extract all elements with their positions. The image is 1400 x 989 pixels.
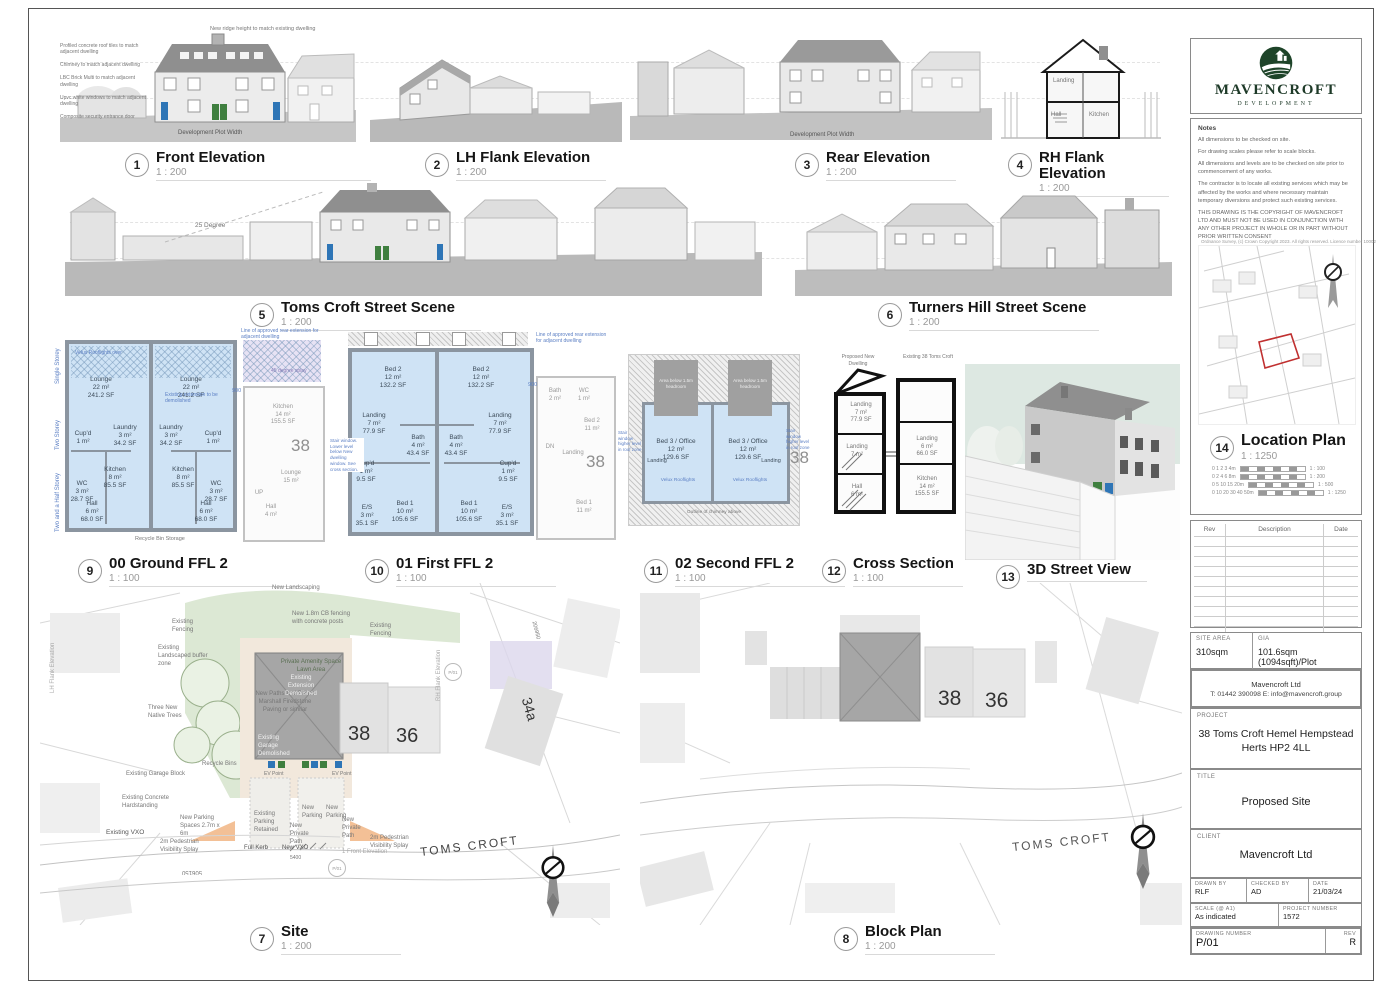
project-box: PROJECT 38 Toms Croft Hemel Hempstead He… [1190, 708, 1362, 769]
rev-cell [1324, 587, 1358, 597]
site-label: Existing VXO [106, 829, 144, 837]
site-area-label: SITE AREA [1196, 636, 1247, 642]
site-label: New VXO [282, 845, 308, 853]
turners-hill-scene-view [795, 188, 1172, 298]
scale-bar-row: 0 10 20 30 40 50m1 : 1250 [1212, 490, 1354, 496]
neighbor-room: DN [540, 444, 560, 452]
view-number-badge: 11 [644, 559, 668, 583]
internal-wall [171, 450, 231, 452]
checked-by-value: AD [1251, 887, 1304, 896]
gia-label: GIA [1258, 636, 1356, 642]
rev-cell [1324, 547, 1358, 557]
site-label: Private Amenity Space Lawn Area [278, 659, 344, 675]
view-scale: 1 : 200 [909, 317, 1099, 328]
rh-room-label: Landing [1053, 78, 1074, 86]
scale-ticks: 0 1 2 3 4m [1212, 466, 1236, 472]
view-title: Location Plan [1241, 433, 1346, 450]
site-label: EV Point [264, 771, 283, 778]
view-scale: 1 : 200 [281, 941, 401, 952]
front-elevation-view: Profiled concrete roof tiles to match ad… [60, 30, 356, 150]
room-label: Landing 7 m² 77.9 SF [356, 412, 392, 436]
chimney-note: Outline of chimney above [684, 510, 744, 516]
section-room: Landing 6 m² 66.0 SF [910, 436, 944, 459]
room-label: Landing [758, 458, 784, 465]
view-title: Turners Hill Street Scene [909, 300, 1099, 316]
lh-flank-view [370, 36, 622, 148]
view-scale: 1 : 200 [826, 167, 956, 178]
neighbor-room: WC 1 m² [572, 388, 596, 403]
site-label: New Private Path [290, 823, 316, 846]
gap-dim: 900 [232, 388, 241, 395]
view-number-badge: 3 [795, 153, 819, 177]
view-title: 02 Second FFL 2 [675, 556, 845, 572]
view-number-badge: 1 [125, 153, 149, 177]
house-number: 38 [291, 436, 310, 456]
storey-label: Two and a Half Storey [55, 473, 63, 532]
toms-croft-scene-drawing [65, 182, 762, 296]
velux-note: Velux Rooflights over [75, 350, 135, 356]
block-plan-drawing [640, 583, 1182, 925]
site-label: New 1.8m CB fencing with concrete posts [292, 611, 354, 627]
note-item: THIS DRAWING IS THE COPYRIGHT OF MAVENCR… [1198, 209, 1354, 241]
extension-note: Line of approved rear extension for adja… [536, 332, 612, 345]
scale-bar-graphic [1248, 482, 1314, 488]
view-number-badge: 9 [78, 559, 102, 583]
gia-value: 101.6sqm (1094sqft)/Plot [1258, 647, 1356, 667]
view-label-scene-toms: 5 Toms Croft Street Scene 1 : 200 [250, 300, 481, 331]
site-dim: 506150 [182, 867, 202, 875]
project-number-value: 1572 [1283, 912, 1357, 921]
section-col-right: Existing 38 Toms Croft [900, 354, 956, 361]
dormer [416, 332, 430, 346]
ridge-note: New ridge height to match existing dwell… [210, 26, 340, 33]
scale-bar-row: 0 1 2 3 4m1 : 100 [1212, 466, 1354, 472]
rev-cell [1226, 567, 1324, 577]
view-label-lh: 2 LH Flank Elevation 1 : 200 [425, 150, 606, 181]
room-label: Bath 4 m² 43.4 SF [440, 434, 472, 458]
neighbor-room: Bed 2 11 m² [576, 418, 608, 433]
revision-table: Rev Description Date [1190, 520, 1362, 628]
site-label: New Parking [326, 805, 350, 821]
scale-bar-graphic [1258, 490, 1324, 496]
room-label: Bed 2 12 m² 132.2 SF [374, 366, 412, 390]
note-line: LBC Brick Multi to match adjacent dwelli… [60, 75, 135, 88]
neighbor-room: UP [249, 490, 269, 498]
rev-cell [1194, 587, 1226, 597]
title-value: Proposed Site [1197, 796, 1355, 808]
client-label: CLIENT [1197, 834, 1355, 840]
storey-label: Single Storey [55, 348, 63, 384]
title-box: TITLE Proposed Site [1190, 769, 1362, 829]
room-label: Lounge 22 m² 241.2 SF [81, 376, 121, 400]
site-dim: 5400 [290, 855, 301, 862]
room-label: E/S 3 m² 35.1 SF [354, 504, 380, 528]
site-label: Existing Parking Retained [254, 811, 288, 834]
view-number-badge: 5 [250, 303, 274, 327]
brand-tagline: DEVELOPMENT [1237, 101, 1314, 107]
view-scale: 1 : 200 [281, 317, 481, 328]
view-scale: 1 : 200 [456, 167, 606, 178]
scale-row: SCALE (@ A1) As indicated PROJECT NUMBER… [1190, 903, 1362, 927]
site-label: Three New Native Trees [148, 705, 188, 721]
room-label: E/S 3 m² 35.1 SF [494, 504, 520, 528]
rev-col-header: Rev [1194, 524, 1226, 537]
site-plan-view: New Landscaping Existing Fencing Existin… [40, 583, 620, 925]
house-number: 38 [586, 452, 605, 472]
party-wall [711, 402, 714, 504]
site-label: New Landscaping [272, 585, 320, 593]
first-plan-view: Bed 2 12 m² 132.2 SF Bed 2 12 m² 132.2 S… [330, 332, 612, 552]
room-label: Landing 7 m² 77.9 SF [482, 412, 518, 436]
headroom-label: Area below 1.5m headroom [730, 378, 770, 390]
site-label: LH Flank Elevation [50, 643, 58, 693]
view-title: Front Elevation [156, 150, 371, 166]
view-title: Block Plan [865, 924, 995, 940]
note-line: Upvc white windows to match adjacent dwe… [60, 95, 146, 108]
room-label: Bed 2 12 m² 132.2 SF [462, 366, 500, 390]
notes-location-box: Notes All dimensions to be checked on si… [1190, 118, 1362, 515]
neighbor-room: Bath 2 m² [542, 388, 568, 403]
rev-cell [1226, 617, 1324, 627]
splay-hatch [243, 340, 321, 382]
neighbor-room: Kitchen 14 m² 155.5 SF [261, 404, 305, 427]
scale-bar-row: 0 5 10 15 20m1 : 500 [1212, 482, 1354, 488]
splay-note: 45 degree splay [271, 368, 307, 375]
scale-ticks: 0 10 20 30 40 50m [1212, 490, 1254, 496]
rh-room-label: Hall [1051, 112, 1061, 120]
internal-wall [438, 424, 474, 426]
scale-ratio: 1 : 200 [1310, 474, 1325, 480]
view-label-rear: 3 Rear Elevation 1 : 200 [795, 150, 956, 181]
view-scale: 1 : 200 [865, 941, 995, 952]
room-label: Bed 1 10 m² 105.6 SF [450, 500, 488, 524]
ref-marker: P/01 [328, 859, 346, 877]
front-elevation-notes: Profiled concrete roof tiles to match ad… [60, 36, 148, 121]
rev-value: R [1330, 937, 1356, 947]
rev-col-header: Description [1226, 524, 1324, 537]
site-label: 2m Pedestrian Visibility Splay [160, 839, 204, 855]
site-label: Full Kerb [244, 845, 268, 853]
logo-box: MAVENCROFT DEVELOPMENT [1190, 38, 1362, 114]
site-label: Existing Garage Demolished [258, 735, 296, 758]
scale-ticks: 0 5 10 15 20m [1212, 482, 1244, 488]
rev-cell [1226, 597, 1324, 607]
scale-ratio: 1 : 500 [1318, 482, 1333, 488]
rev-cell [1324, 617, 1358, 627]
location-map: Ordnance Survey, (c) Crown Copyright 202… [1198, 245, 1356, 425]
title-label: TITLE [1197, 774, 1355, 780]
site-area-value: 310sqm [1196, 647, 1247, 657]
view-scale: 1 : 1250 [1241, 451, 1346, 462]
view-title: 01 First FFL 2 [396, 556, 556, 572]
note-item: The contractor is to locate all existing… [1198, 180, 1354, 204]
plot-width-label: Development Plot Width [790, 132, 854, 140]
view-label-site: 7 Site 1 : 200 [250, 924, 401, 955]
storey-label: Two Storey [55, 420, 63, 450]
rev-cell [1226, 557, 1324, 567]
internal-wall [400, 424, 436, 426]
view-number-badge: 10 [365, 559, 389, 583]
scale-bars: 0 1 2 3 4m1 : 100 0 2 4 6 8m1 : 200 0 5 … [1198, 466, 1354, 496]
location-map-drawing [1199, 246, 1355, 424]
rev-cell [1226, 607, 1324, 617]
rev-cell [1194, 557, 1226, 567]
velux-note: Velux Rooflights [658, 478, 698, 484]
view-title: 00 Ground FFL 2 [109, 556, 299, 572]
party-wall [435, 348, 439, 536]
house-number-38: 38 [938, 687, 961, 711]
note-line: Profiled concrete roof tiles to match ad… [60, 43, 138, 56]
view-number-badge: 8 [834, 927, 858, 951]
contact-details: T: 01442 390098 E: info@mavencroft.group [1210, 691, 1342, 698]
rev-cell [1324, 597, 1358, 607]
view-title: Rear Elevation [826, 150, 956, 166]
view-title: 3D Street View [1027, 562, 1147, 578]
rev-cell [1324, 577, 1358, 587]
os-copyright: Ordnance Survey, (c) Crown Copyright 202… [1201, 239, 1376, 244]
rev-cell [1226, 547, 1324, 557]
drawing-sheet: Profiled concrete roof tiles to match ad… [0, 0, 1400, 989]
section-col-left: Proposed New Dwelling [832, 354, 884, 367]
degree-25-label: 25 Degree [195, 222, 225, 230]
room-label: Cup'd 1 m² 9.5 SF [494, 460, 522, 484]
lh-flank-drawing [370, 36, 622, 142]
rev-cell [1194, 607, 1226, 617]
rh-room-label: Kitchen [1089, 112, 1109, 120]
section-room: Kitchen 14 m² 155.5 SF [910, 476, 944, 499]
view-title: RH Flank Elevation [1039, 150, 1169, 182]
rev-cell [1324, 557, 1358, 567]
note-item: All dimensions and levels are to be chec… [1198, 160, 1354, 176]
room-label: Kitchen 8 m² 85.5 SF [95, 466, 135, 490]
scale-ratio: 1 : 1250 [1328, 490, 1346, 496]
rear-elevation-drawing [630, 32, 992, 140]
area-box: SITE AREA 310sqm GIA 101.6sqm (1094sqft)… [1190, 632, 1362, 669]
site-label: New Parking Spaces 2.7m x 6m [180, 815, 222, 838]
view-number-badge: 14 [1210, 436, 1234, 460]
block-plan-view: 38 36 TOMS CROFT [640, 583, 1182, 925]
room-label: Bed 1 10 m² 105.6 SF [386, 500, 424, 524]
internal-wall [71, 450, 131, 452]
north-arrow-icon [538, 845, 568, 917]
house-number-36: 36 [396, 725, 418, 748]
rear-elevation-view: Development Plot Width [630, 32, 992, 148]
site-label: Existing Fencing [172, 619, 216, 635]
street-view-3d-drawing [965, 364, 1180, 560]
drawn-by-value: RLF [1195, 887, 1242, 896]
rooflight-hatch [155, 346, 231, 378]
sheet-scale-value: As indicated [1195, 912, 1274, 921]
site-label: Existing Concrete Hardstanding [122, 795, 178, 811]
rev-cell [1324, 567, 1358, 577]
scale-bar-graphic [1240, 466, 1306, 472]
headroom-label: Area below 1.5m headroom [656, 378, 696, 390]
section-room: Landing 7 m² [842, 444, 872, 459]
room-label: Cup'd 1 m² [199, 430, 227, 446]
room-label: Laundry 3 m² 34.2 SF [153, 424, 189, 448]
plot-width-label: Development Plot Width [178, 130, 242, 138]
room-label: Hall 6 m² 68.0 SF [191, 500, 221, 524]
view-label-block: 8 Block Plan 1 : 200 [834, 924, 995, 955]
room-label: Hall 6 m² 68.0 SF [77, 500, 107, 524]
mavencroft-logo-icon [1259, 46, 1293, 80]
notes-heading: Notes [1198, 125, 1354, 132]
drawn-row: DRAWN BY RLF CHECKED BY AD DATE 21/03/24 [1190, 878, 1362, 903]
room-label: Laundry 3 m² 34.2 SF [107, 424, 143, 448]
date-value: 21/03/24 [1313, 887, 1357, 896]
section-room: Hall 6 m² [842, 484, 872, 499]
neighbor-room: Bed 1 11 m² [568, 500, 600, 515]
view-number-badge: 12 [822, 559, 846, 583]
view-label-location: 14 Location Plan 1 : 1250 [1210, 433, 1354, 462]
dormer [452, 332, 466, 346]
site-label: Recycle Bins [202, 761, 242, 769]
rev-cell [1194, 547, 1226, 557]
house-number-38: 38 [348, 723, 370, 746]
view-number-badge: 2 [425, 153, 449, 177]
neighbor-room: Lounge 15 m² [273, 470, 309, 485]
cross-section-view: Proposed New Dwelling Existing 38 Toms C… [828, 356, 962, 528]
rev-cell [1324, 537, 1358, 547]
velux-note: Velux Rooflights [730, 478, 770, 484]
rev-cell [1194, 577, 1226, 587]
site-label: Existing Garage Block [126, 771, 186, 779]
second-plan-view: Area below 1.5m headroom Area below 1.5m… [618, 350, 810, 546]
view-scale: 1 : 200 [156, 167, 371, 178]
contact-box: Mavencroft Ltd T: 01442 390098 E: info@m… [1190, 669, 1362, 708]
site-label: New Parking [302, 805, 326, 821]
house-number-36: 36 [985, 689, 1008, 713]
view-title: Site [281, 924, 401, 940]
client-value: Mavencroft Ltd [1197, 849, 1355, 861]
gap-dim: 900 [528, 382, 537, 389]
note-item: All dimensions to be checked on site. [1198, 136, 1354, 144]
view-number-badge: 6 [878, 303, 902, 327]
rh-flank-drawing [995, 34, 1167, 142]
scale-bar-graphic [1240, 474, 1306, 480]
rev-cell [1324, 607, 1358, 617]
neighbor-room: Landing [558, 450, 588, 458]
demolish-note: Existing extension to be demolished [165, 392, 221, 405]
house-number: 38 [790, 448, 809, 468]
room-label: Cup'd 1 m² [69, 430, 97, 446]
room-label: Bath 4 m² 43.4 SF [402, 434, 434, 458]
rev-cell [1226, 587, 1324, 597]
dormer [364, 332, 378, 346]
site-label: Existing Fencing [370, 623, 414, 639]
stair-window-note: Stair window higher level in roof zone [618, 430, 642, 453]
turners-hill-scene-drawing [795, 188, 1172, 296]
extension-note: Line of approved rear extension for adja… [241, 328, 321, 341]
project-label: PROJECT [1197, 713, 1355, 719]
note-line: Composite security entrance door [60, 114, 135, 120]
rev-cell [1194, 567, 1226, 577]
rev-cell [1194, 597, 1226, 607]
view-label-front: 1 Front Elevation 1 : 200 [125, 150, 371, 181]
toms-croft-scene-view: 25 Degree [65, 182, 762, 298]
ref-marker: P/01 [444, 663, 462, 681]
view-number-badge: 4 [1008, 153, 1032, 177]
note-item: For drawing scales please refer to scale… [1198, 148, 1354, 156]
rev-cell [1226, 537, 1324, 547]
view-label-scene-turners: 6 Turners Hill Street Scene 1 : 200 [878, 300, 1099, 331]
client-box: CLIENT Mavencroft Ltd [1190, 829, 1362, 878]
north-arrow-icon [1128, 813, 1158, 889]
contact-company: Mavencroft Ltd [1251, 680, 1301, 689]
brand-name: MAVENCROFT [1215, 82, 1337, 99]
scale-bar-row: 0 2 4 6 8m1 : 200 [1212, 474, 1354, 480]
rev-col-header: Date [1324, 524, 1358, 537]
view-number-badge: 7 [250, 927, 274, 951]
drawing-number-value: P/01 [1196, 937, 1321, 949]
drawing-number-row: DRAWING NUMBER P/01 REV R [1190, 927, 1362, 955]
view-title: Cross Section [853, 556, 963, 572]
project-value: 38 Toms Croft Hemel Hempstead Herts HP2 … [1197, 727, 1355, 755]
dormer [502, 332, 516, 346]
rev-cell [1226, 577, 1324, 587]
section-room: Landing 7 m² 77.9 SF [846, 402, 876, 425]
rev-cell [1194, 537, 1226, 547]
room-label: Landing [644, 458, 670, 465]
room-label: Kitchen 8 m² 85.5 SF [163, 466, 203, 490]
site-label: 1 Front Elevation [342, 849, 387, 857]
street-view-3d [965, 364, 1180, 562]
scale-ratio: 1 : 100 [1310, 466, 1325, 472]
site-label: EV Point [332, 771, 351, 778]
view-title: LH Flank Elevation [456, 150, 606, 166]
rev-cell [1194, 617, 1226, 627]
view-title: Toms Croft Street Scene [281, 300, 481, 316]
stair-window-note: Stair window. Lower level below New dwel… [330, 438, 364, 472]
site-label: Existing Landscaped buffer zone [158, 645, 208, 668]
neighbor-room: Hall 4 m² [257, 504, 285, 519]
scale-ticks: 0 2 4 6 8m [1212, 474, 1236, 480]
bin-storage-label: Recycle Bin Storage [135, 536, 185, 543]
rh-flank-view: Landing Hall Kitchen [995, 34, 1167, 148]
ground-plan-view: Lounge 22 m² 241.2 SF Lounge 22 m² 241.2… [45, 332, 321, 552]
note-line: Chimney to match adjacent dwelling [60, 62, 140, 68]
site-label: Existing Extension Demolished [278, 675, 324, 698]
site-label: RH Flank Elevation [436, 650, 444, 701]
